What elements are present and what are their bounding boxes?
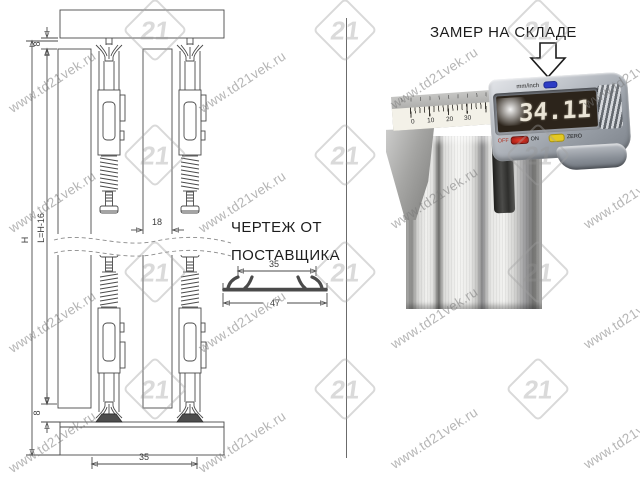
- product-image-canvas: H L=H-16 8 8 18: [0, 0, 640, 480]
- ruler-number: 10: [425, 117, 437, 125]
- dimension-8-top: 8: [32, 27, 58, 60]
- mm-inch-label: mm/inch: [516, 82, 539, 89]
- dim-8-top-label: 8: [32, 41, 42, 46]
- caliper-display-head: mm/inch 34.11 OFF ON ZERO: [488, 72, 632, 162]
- ruler-number: 20: [443, 116, 455, 124]
- down-arrow-icon: [526, 42, 570, 80]
- door-panel-right: [143, 49, 172, 408]
- thumb-grip: [556, 143, 627, 171]
- supplier-note-line1: ЧЕРТЕЖ ОТ: [231, 214, 340, 242]
- carriage-bottom-left: [96, 250, 125, 418]
- bottom-wheel-left: [96, 414, 122, 422]
- bottom-wheel-right: [177, 414, 203, 422]
- top-rail-left: [106, 38, 112, 45]
- zero-label: ZERO: [567, 133, 583, 140]
- profile-dim-47-label: 47: [270, 298, 280, 308]
- door-panel-left: [58, 49, 91, 408]
- zero-button: [549, 133, 565, 142]
- top-track-panel: [60, 10, 224, 38]
- photo-title: ЗАМЕР НА СКЛАДЕ: [430, 24, 577, 41]
- dimension-8-bottom: 8: [32, 393, 60, 433]
- off-label: OFF: [498, 138, 509, 145]
- dim-h-label: H: [20, 237, 30, 244]
- carriage-top-left: [96, 45, 125, 213]
- lcd-bezel: 34.11: [493, 87, 601, 135]
- grip-ridges: [597, 84, 624, 129]
- ruler-number: 30: [461, 114, 473, 122]
- on-off-button: [511, 136, 529, 145]
- dim-l-label: L=H-16: [36, 213, 46, 243]
- dim-8-bottom-label: 8: [32, 410, 42, 415]
- lcd-screen: 34.11: [496, 90, 598, 132]
- supplier-note-line2: ПОСТАВЩИКА: [231, 242, 340, 270]
- supplier-note: ЧЕРТЕЖ ОТ ПОСТАВЩИКА: [231, 214, 340, 270]
- top-rail-right: [187, 38, 193, 45]
- ruler-number: 0: [407, 118, 419, 126]
- on-label: ON: [531, 136, 540, 142]
- dim-35-bottom-label: 35: [139, 452, 149, 462]
- lcd-glare: [496, 96, 532, 126]
- dim-18-label: 18: [152, 217, 162, 227]
- section-divider: [346, 18, 347, 458]
- mm-inch-button: [543, 81, 557, 89]
- warehouse-photo: ЗАМЕР НА СКЛАДЕ 0 10 20 30 mm/inch 34.11: [348, 0, 640, 480]
- carriage-top-right: [177, 45, 206, 213]
- carriage-bottom-right: [177, 250, 206, 418]
- dimension-L: L=H-16: [36, 49, 57, 404]
